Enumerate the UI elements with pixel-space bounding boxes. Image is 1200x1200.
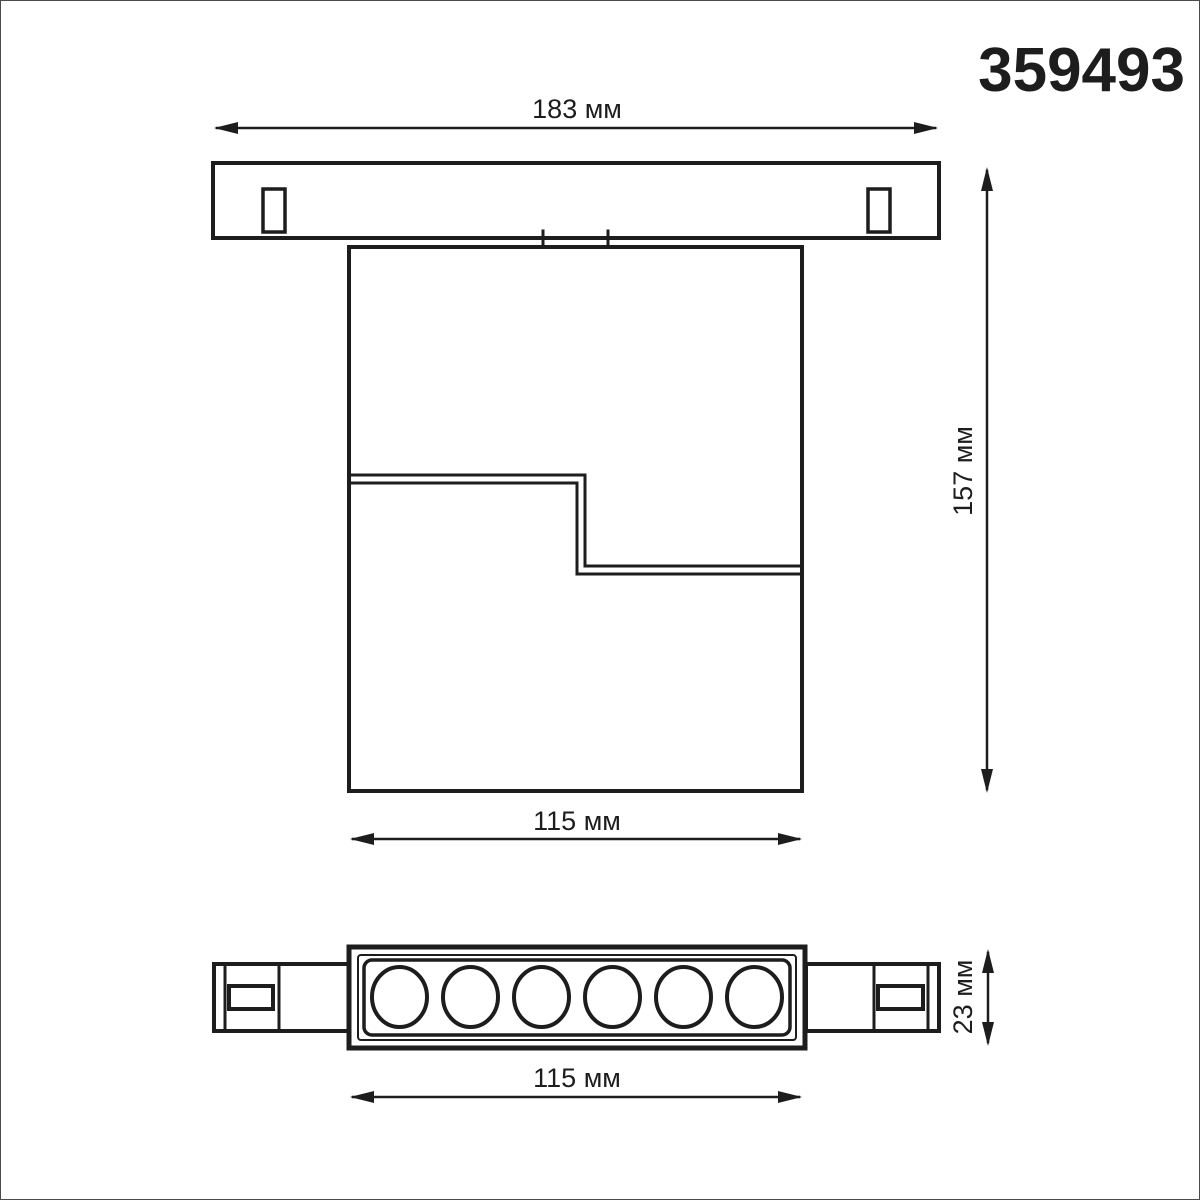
arrowhead-up-icon — [981, 167, 993, 191]
dimension-drawing: 359493 183 мм — [1, 1, 1200, 1200]
led-module — [349, 947, 805, 1048]
dim-label-track-width: 183 мм — [532, 94, 622, 124]
led-circle — [727, 967, 782, 1027]
adapter-arm-left — [214, 964, 349, 1031]
front-view: 183 мм 157 мм — [213, 94, 993, 845]
led-circle — [656, 967, 711, 1027]
track-slot-left — [263, 189, 285, 232]
dim-module-width: 115 мм — [350, 1063, 802, 1103]
technical-drawing-page: 359493 183 мм — [0, 0, 1200, 1200]
bottom-view: 23 мм 115 мм — [214, 947, 994, 1103]
led-circle — [372, 967, 427, 1027]
dim-label-overall-height: 157 мм — [948, 426, 978, 516]
arrowhead-up-icon — [982, 949, 994, 973]
arrowhead-right-icon — [778, 1091, 802, 1103]
luminaire-body — [349, 247, 802, 791]
dim-body-width: 115 мм — [350, 806, 802, 845]
dim-module-height: 23 мм — [948, 949, 994, 1046]
arm-slot — [878, 986, 923, 1009]
arrowhead-right-icon — [914, 122, 938, 134]
track-slot-right — [868, 189, 890, 232]
arrowhead-right-icon — [778, 833, 802, 845]
arrowhead-left-icon — [214, 122, 238, 134]
led-circle — [585, 967, 640, 1027]
arm-slot — [229, 986, 273, 1009]
track-rail — [213, 163, 939, 238]
led-circle — [443, 967, 498, 1027]
dim-label-module-width: 115 мм — [533, 1063, 621, 1093]
product-code: 359493 — [978, 36, 1185, 105]
arrowhead-left-icon — [350, 833, 374, 845]
dim-label-module-height: 23 мм — [948, 960, 978, 1035]
dim-label-body-width: 115 мм — [533, 806, 621, 836]
arrowhead-down-icon — [982, 1022, 994, 1046]
led-circle — [514, 967, 569, 1027]
track-rail-body — [213, 163, 939, 238]
adapter-arm-right — [806, 964, 939, 1031]
arrowhead-left-icon — [350, 1091, 374, 1103]
dim-overall-height: 157 мм — [948, 167, 993, 793]
dim-track-width: 183 мм — [214, 94, 938, 134]
arrowhead-down-icon — [981, 769, 993, 793]
